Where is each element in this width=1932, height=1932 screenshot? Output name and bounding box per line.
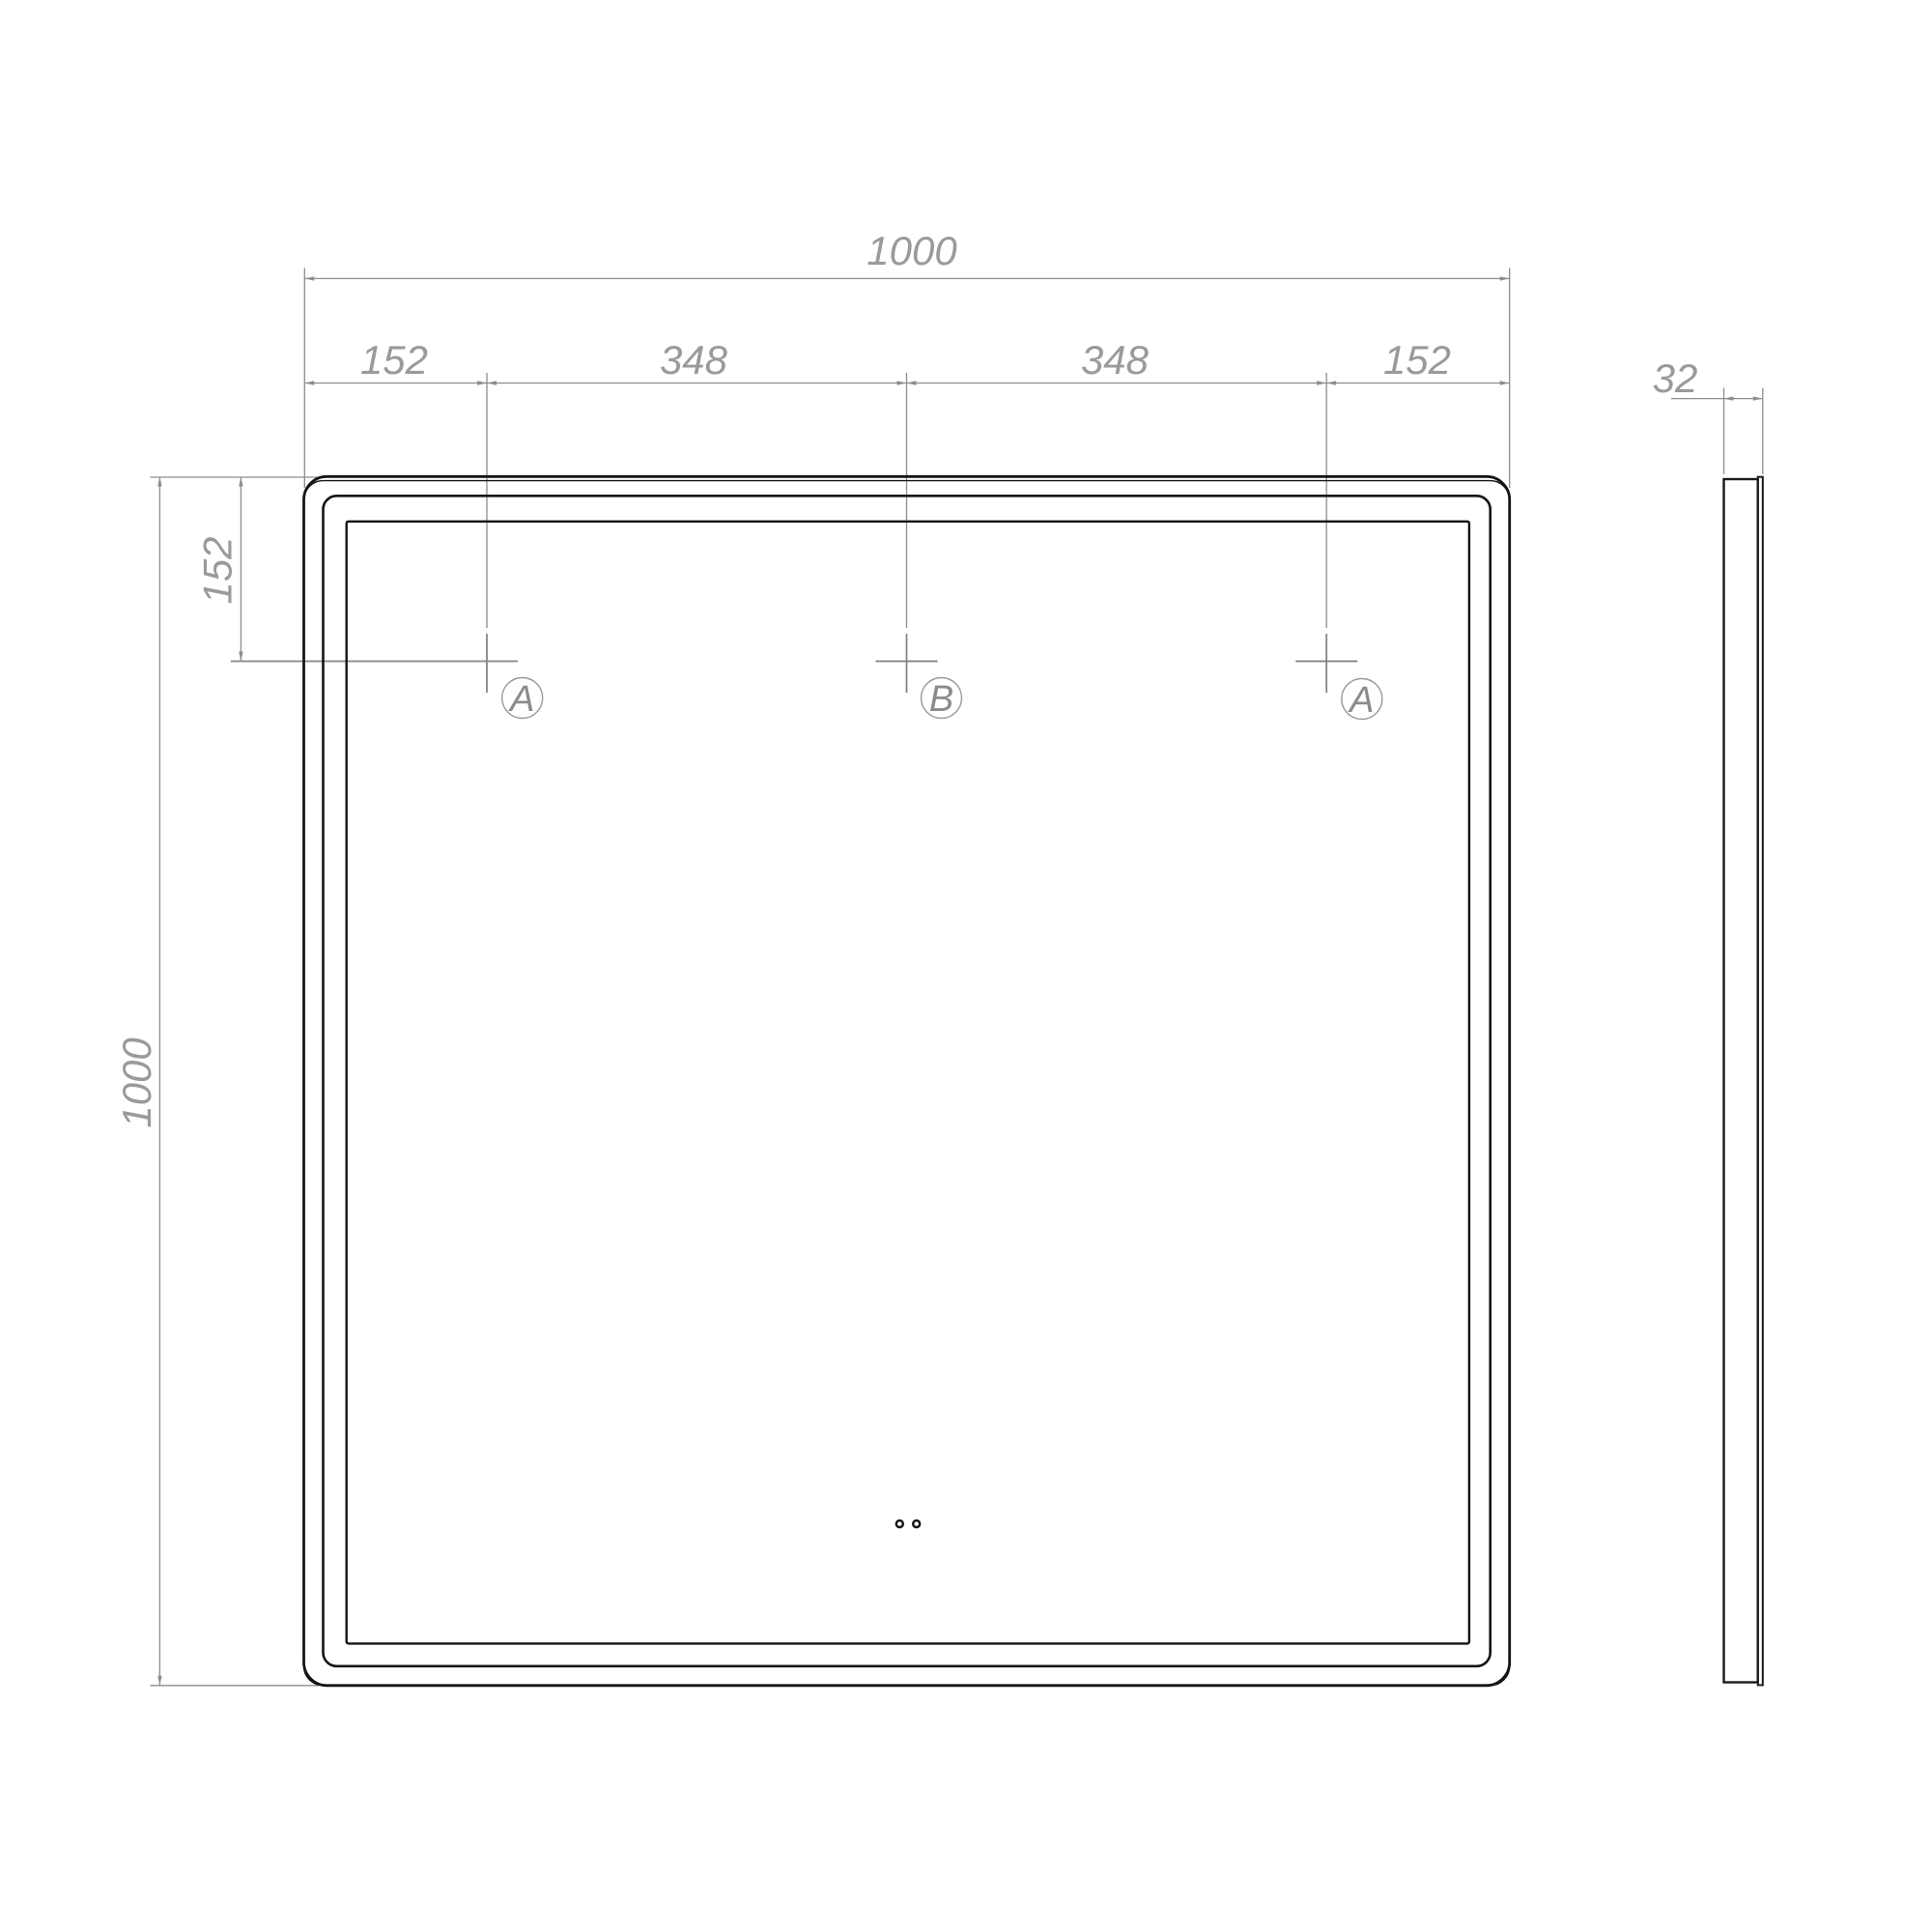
- svg-text:1000: 1000: [867, 228, 957, 273]
- svg-text:B: B: [929, 679, 953, 720]
- svg-text:348: 348: [660, 337, 728, 383]
- svg-text:152: 152: [360, 337, 428, 383]
- svg-text:A: A: [508, 679, 534, 720]
- svg-text:32: 32: [1653, 355, 1698, 401]
- svg-text:A: A: [1348, 680, 1374, 721]
- svg-text:152: 152: [1383, 337, 1451, 383]
- svg-text:1000: 1000: [114, 1037, 159, 1128]
- svg-text:348: 348: [1081, 337, 1150, 383]
- svg-text:152: 152: [195, 536, 241, 604]
